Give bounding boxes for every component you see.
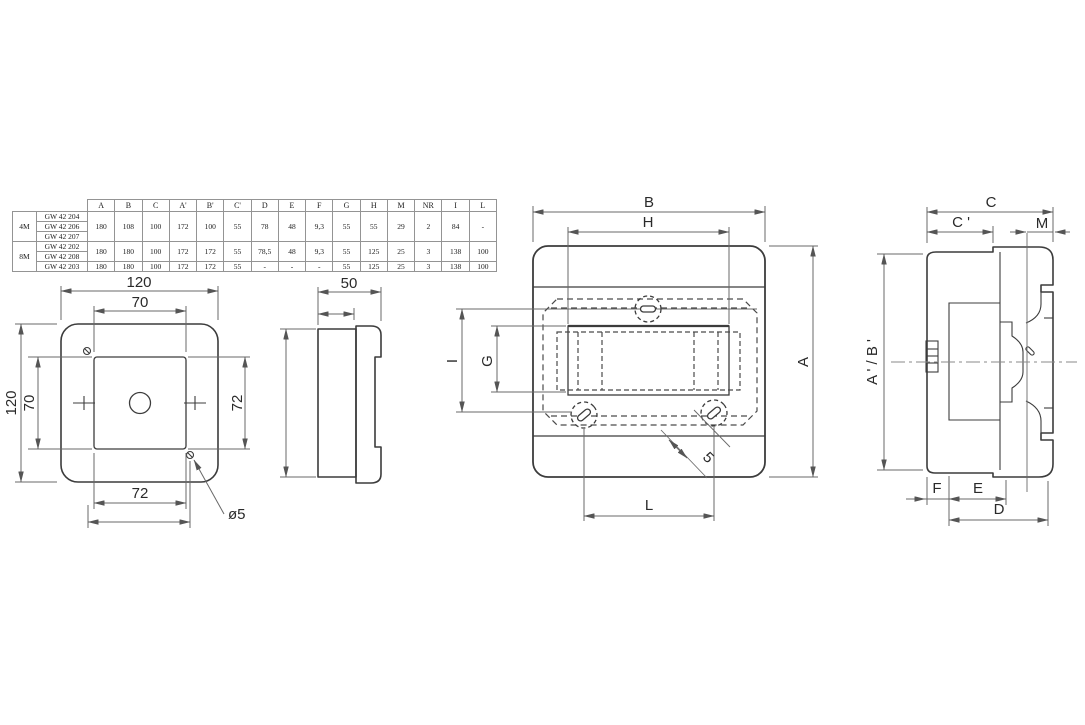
- value-cell: 55: [224, 262, 251, 272]
- col-header: F: [306, 200, 333, 212]
- model-cell: GW 42 208: [37, 252, 88, 262]
- value-cell: 9,3: [306, 242, 333, 262]
- value-cell: 108: [115, 212, 142, 242]
- value-cell: 100: [142, 242, 169, 262]
- value-cell: 138: [442, 262, 469, 272]
- hole-diameter-callout: ø5: [228, 506, 246, 523]
- value-cell: 25: [387, 262, 414, 272]
- col-header: E: [278, 200, 305, 212]
- fixing-screw-bottom-left: [566, 397, 603, 434]
- value-cell: 2: [415, 212, 442, 242]
- value-cell: 3: [415, 262, 442, 272]
- col-header: D: [251, 200, 278, 212]
- value-cell: 180: [88, 242, 115, 262]
- dim-label-h: H: [643, 214, 654, 231]
- value-cell: 172: [169, 242, 196, 262]
- value-cell: 48: [278, 242, 305, 262]
- value-cell: 78: [251, 212, 278, 242]
- table-row: 4M GW 42 204 180 108 100 172 100 55 78 4…: [13, 212, 497, 222]
- drawing-canvas: 120 70 120 70 72 72 ø5 50: [0, 0, 1085, 725]
- col-header: I: [442, 200, 469, 212]
- col-header: A': [169, 200, 196, 212]
- value-cell: 48: [278, 212, 305, 242]
- col-header: A: [88, 200, 115, 212]
- dim-label-depth: 50: [341, 275, 358, 292]
- model-cell: GW 42 203: [37, 262, 88, 272]
- value-cell: 100: [142, 262, 169, 272]
- value-cell: 172: [197, 262, 224, 272]
- value-cell: 55: [333, 242, 360, 262]
- value-cell: 180: [88, 262, 115, 272]
- col-header: C': [224, 200, 251, 212]
- model-cell: GW 42 202: [37, 242, 88, 252]
- value-cell: 84: [442, 212, 469, 242]
- side-view: 50: [280, 275, 381, 483]
- dim-label-d: D: [994, 501, 1005, 518]
- spec-table: A B C A' B' C' D E F G H M NR I L 4M GW …: [12, 199, 497, 272]
- dim-label-b: B: [644, 194, 654, 211]
- value-cell: 180: [88, 212, 115, 242]
- table-row: 8M GW 42 202 180 180 100 172 172 55 78,5…: [13, 242, 497, 252]
- value-cell: 55: [333, 212, 360, 242]
- col-header: H: [360, 200, 387, 212]
- value-cell: -: [306, 262, 333, 272]
- dim-label-c-prime: C ': [952, 214, 970, 231]
- dim-label-l: L: [645, 497, 653, 514]
- group-cell: 4M: [13, 212, 37, 242]
- section-view: C C ' M A ' / B ' F E D: [864, 194, 1077, 526]
- value-cell: 172: [169, 212, 196, 242]
- dim-label-right: 72: [229, 395, 246, 412]
- value-cell: 55: [224, 212, 251, 242]
- value-cell: 3: [415, 242, 442, 262]
- col-header: L: [469, 200, 496, 212]
- value-cell: -: [469, 212, 496, 242]
- dim-label-f: F: [932, 480, 941, 497]
- value-cell: 172: [197, 242, 224, 262]
- hole-leader-line: [194, 460, 224, 514]
- dim-label-inner-width: 70: [132, 294, 149, 311]
- value-cell: 55: [224, 242, 251, 262]
- center-hole: [130, 393, 151, 414]
- value-cell: 180: [115, 242, 142, 262]
- dim-label-a-b-prime: A ' / B ': [864, 339, 881, 385]
- value-cell: 9,3: [306, 212, 333, 242]
- table-header-row: A B C A' B' C' D E F G H M NR I L: [13, 200, 497, 212]
- value-cell: -: [251, 262, 278, 272]
- dim-label-width-top: 120: [126, 274, 151, 291]
- dim-label-c: C: [986, 194, 997, 211]
- value-cell: 25: [387, 242, 414, 262]
- din-rail-dashed-rect: [557, 332, 740, 390]
- value-cell: 55: [360, 212, 387, 242]
- window-outline: [94, 357, 186, 449]
- model-cell: GW 42 204: [37, 212, 88, 222]
- dim-label-bottom: 72: [132, 485, 149, 502]
- side-body-outline: [318, 329, 356, 477]
- value-cell: 78,5: [251, 242, 278, 262]
- value-cell: 100: [469, 262, 496, 272]
- col-header: G: [333, 200, 360, 212]
- section-inner-detail: [926, 252, 1053, 470]
- value-cell: 138: [442, 242, 469, 262]
- value-cell: -: [278, 262, 305, 272]
- table-row: GW 42 203 180 180 100 172 172 55 - - - 5…: [13, 262, 497, 272]
- value-cell: 55: [333, 262, 360, 272]
- dim-label-g: G: [479, 355, 496, 367]
- side-view-dimension-lines: [280, 287, 381, 477]
- corner-screw-bottom-right: [187, 452, 194, 459]
- din-window-outline: [568, 326, 729, 395]
- side-lid-outline: [356, 326, 381, 483]
- col-header: B: [115, 200, 142, 212]
- dim-label-height-left: 120: [3, 390, 20, 415]
- value-cell: 125: [360, 242, 387, 262]
- header-spacer: [37, 200, 88, 212]
- value-cell: 100: [142, 212, 169, 242]
- value-cell: 180: [115, 262, 142, 272]
- value-cell: 100: [469, 242, 496, 262]
- din-screw-detail: [1025, 346, 1035, 356]
- col-header: B': [197, 200, 224, 212]
- model-cell: GW 42 207: [37, 232, 88, 242]
- col-header: M: [387, 200, 414, 212]
- dim-label-i: I: [444, 359, 461, 363]
- dim-label-m: M: [1036, 215, 1049, 232]
- model-cell: GW 42 206: [37, 222, 88, 232]
- module-slot-dashed-lines: [578, 332, 718, 390]
- value-cell: 29: [387, 212, 414, 242]
- group-cell: 8M: [13, 242, 37, 272]
- technical-drawing-sheet: 120 70 120 70 72 72 ø5 50: [0, 0, 1085, 725]
- panel-view: B H A L I G 5: [444, 194, 818, 521]
- value-cell: 100: [197, 212, 224, 242]
- value-cell: 125: [360, 262, 387, 272]
- header-spacer: [13, 200, 37, 212]
- section-view-dimension-lines: [877, 207, 1070, 526]
- front-view: 120 70 120 70 72 72 ø5: [3, 274, 250, 528]
- slot-width-detail: [661, 410, 730, 478]
- dim-label-inner-height: 70: [21, 395, 38, 412]
- dim-label-e: E: [973, 480, 983, 497]
- corner-screw-top-left: [84, 348, 91, 355]
- col-header: C: [142, 200, 169, 212]
- value-cell: 172: [169, 262, 196, 272]
- dim-label-a: A: [795, 357, 812, 367]
- col-header: NR: [415, 200, 442, 212]
- fixing-screw-bottom-right: [696, 395, 733, 432]
